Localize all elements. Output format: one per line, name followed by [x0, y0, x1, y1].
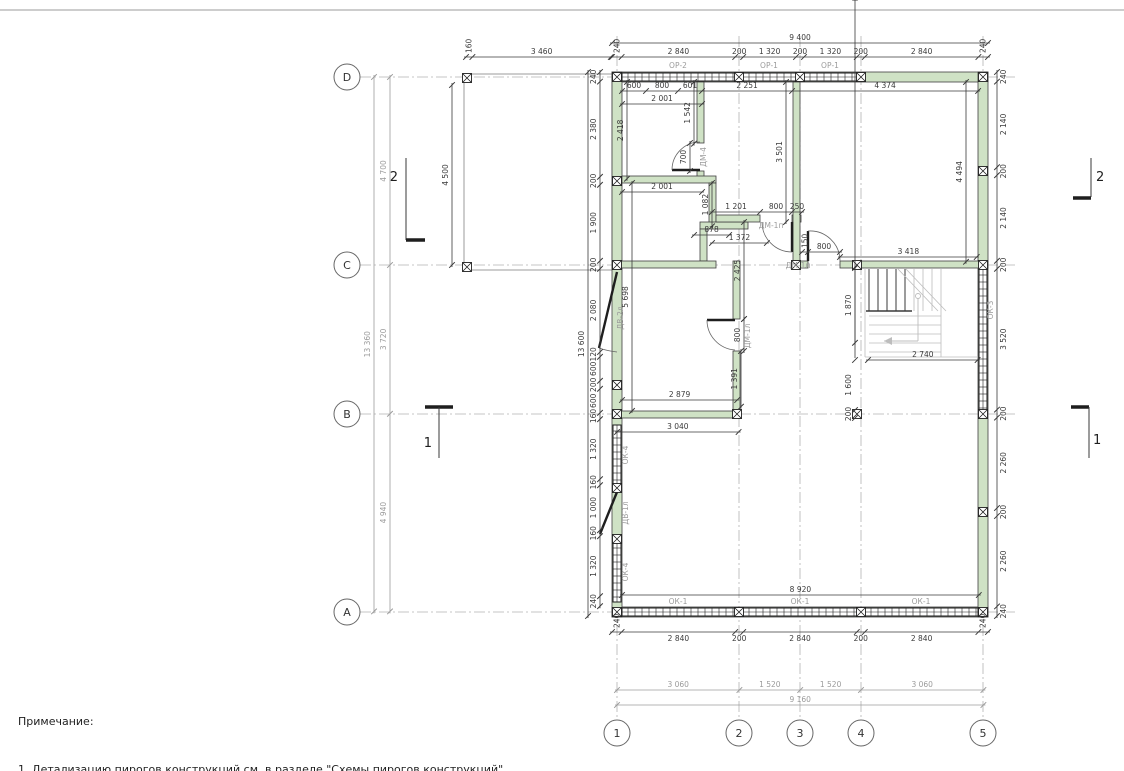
window	[743, 608, 857, 616]
axis-bubble: 3	[787, 720, 813, 746]
pier-box	[613, 261, 622, 270]
dim-chain: 4 494	[955, 79, 969, 264]
pier-box	[613, 73, 622, 82]
pier-box	[979, 410, 988, 419]
svg-text:800: 800	[733, 328, 742, 343]
pier-box	[979, 261, 988, 270]
pier-box	[735, 608, 744, 617]
dim-chain: 5 698	[621, 180, 635, 414]
dim-chain: 4 7003 7204 940	[379, 74, 393, 614]
svg-text:ДМ-1л: ДМ-1л	[743, 323, 752, 348]
svg-text:A: A	[343, 606, 351, 619]
svg-text:200: 200	[732, 634, 747, 643]
axis-bubble: A	[334, 599, 360, 625]
svg-text:200: 200	[999, 164, 1008, 179]
floor-plan: 9 4002402 8402001 3202001 3202002 840240…	[0, 0, 1124, 771]
svg-text:200: 200	[854, 634, 869, 643]
svg-text:2 840: 2 840	[668, 47, 690, 56]
notes-block: Примечание: 1. Детализацию пирогов конст…	[18, 682, 503, 771]
svg-text:2 260: 2 260	[999, 550, 1008, 572]
svg-text:C: C	[343, 259, 351, 272]
wall	[709, 183, 716, 226]
pier-box	[979, 167, 988, 176]
svg-text:ОР-1: ОР-1	[760, 61, 778, 70]
svg-text:13 600: 13 600	[577, 331, 586, 357]
dim-chain: 700	[679, 140, 693, 174]
svg-text:2 140: 2 140	[999, 207, 1008, 229]
svg-text:3 460: 3 460	[531, 47, 553, 56]
dim-chain: 150800	[799, 233, 843, 254]
svg-text:4 720: 4 720	[0, 0, 11, 2]
svg-text:2 380: 2 380	[589, 118, 598, 140]
svg-text:ОК-4: ОК-4	[621, 445, 630, 464]
axis-bubble: 4	[848, 720, 874, 746]
svg-text:120: 120	[589, 347, 598, 362]
note-line-1: 1. Детализацию пирогов конструкций см. в…	[18, 762, 503, 771]
svg-text:200: 200	[589, 377, 598, 392]
svg-text:2 001: 2 001	[651, 94, 673, 103]
svg-text:1 391: 1 391	[730, 368, 739, 390]
pier-box	[857, 608, 866, 617]
svg-text:ДВ-2л: ДВ-2л	[616, 306, 625, 329]
svg-text:3 720: 3 720	[379, 328, 388, 350]
svg-text:2 251: 2 251	[736, 81, 758, 90]
svg-text:1 520: 1 520	[759, 680, 781, 689]
axis-bubble: 2	[726, 720, 752, 746]
svg-text:600: 600	[589, 361, 598, 376]
svg-text:9 400: 9 400	[789, 33, 811, 42]
svg-text:9 160: 9 160	[789, 695, 811, 704]
axis-bubble: 1	[604, 720, 630, 746]
dim-chain: 2402 1402002 1402003 5202002 2602002 260…	[994, 69, 1008, 619]
svg-text:1 320: 1 320	[589, 438, 598, 460]
dimensions-layer: 9 4002402 8402001 3202001 3202002 840240…	[0, 0, 1008, 708]
svg-text:ДМ-1п: ДМ-1п	[786, 261, 811, 270]
svg-text:1: 1	[424, 436, 432, 451]
window	[804, 73, 857, 81]
svg-text:5: 5	[980, 727, 987, 740]
svg-text:3 520: 3 520	[999, 328, 1008, 350]
svg-text:1 201: 1 201	[725, 202, 747, 211]
svg-text:240: 240	[612, 38, 621, 53]
svg-text:1 372: 1 372	[729, 233, 751, 242]
svg-text:1 542: 1 542	[683, 102, 692, 124]
svg-text:1 900: 1 900	[589, 212, 598, 234]
svg-text:1: 1	[1093, 433, 1101, 448]
svg-text:8 920: 8 920	[790, 585, 812, 594]
pier-boxes-layer	[463, 73, 988, 617]
svg-text:2: 2	[736, 727, 743, 740]
svg-text:200: 200	[854, 47, 869, 56]
svg-text:ОК-1: ОК-1	[912, 597, 931, 606]
doors-layer	[599, 142, 840, 534]
svg-text:160: 160	[589, 409, 598, 424]
pier-box	[613, 177, 622, 186]
svg-text:2 879: 2 879	[669, 390, 691, 399]
svg-text:240: 240	[979, 38, 988, 53]
svg-text:4 494: 4 494	[955, 161, 964, 183]
svg-text:3 060: 3 060	[667, 680, 689, 689]
svg-text:ОР-1: ОР-1	[821, 61, 839, 70]
axis-bubble: D	[334, 64, 360, 90]
pier-box	[857, 73, 866, 82]
svg-text:600: 600	[589, 393, 598, 408]
svg-text:800: 800	[817, 242, 832, 251]
svg-text:4 500: 4 500	[441, 164, 450, 186]
svg-text:ДМ-4: ДМ-4	[699, 147, 708, 167]
pier-box	[613, 484, 622, 493]
svg-text:240: 240	[589, 69, 598, 84]
svg-text:1: 1	[614, 727, 621, 740]
pier-box	[979, 508, 988, 517]
svg-text:1 082: 1 082	[701, 194, 710, 216]
svg-text:1 320: 1 320	[820, 47, 842, 56]
svg-text:3 501: 3 501	[775, 141, 784, 163]
svg-text:240: 240	[612, 613, 621, 628]
dim-chain: 1 201800250	[709, 202, 805, 215]
window	[622, 73, 735, 81]
svg-text:1 870: 1 870	[844, 294, 853, 316]
axis-bubble: 5	[970, 720, 996, 746]
svg-text:5 698: 5 698	[621, 286, 630, 308]
wall	[612, 261, 716, 268]
svg-text:2 840: 2 840	[668, 634, 690, 643]
svg-text:150: 150	[801, 233, 810, 248]
svg-text:200: 200	[844, 407, 853, 422]
window	[622, 608, 735, 616]
svg-text:160: 160	[589, 475, 598, 490]
svg-text:160: 160	[465, 38, 474, 53]
pier-box	[796, 73, 805, 82]
svg-text:200: 200	[732, 47, 747, 56]
svg-text:4 700: 4 700	[379, 160, 388, 182]
svg-text:ОР-2: ОР-2	[669, 61, 687, 70]
svg-text:3 418: 3 418	[898, 247, 920, 256]
svg-text:2 080: 2 080	[589, 299, 598, 321]
dim-chain: 1603 460	[463, 38, 613, 59]
svg-text:3: 3	[797, 727, 804, 740]
dim-chain: 4 500	[441, 82, 455, 268]
axis-markers-layer: DCBA12345	[334, 64, 996, 746]
svg-text:2: 2	[390, 170, 398, 185]
svg-text:200: 200	[793, 47, 808, 56]
pier-box	[463, 74, 472, 83]
svg-text:1 320: 1 320	[759, 47, 781, 56]
svg-text:200: 200	[589, 257, 598, 272]
svg-text:240: 240	[979, 613, 988, 628]
svg-text:1 320: 1 320	[589, 555, 598, 577]
svg-text:700: 700	[679, 150, 688, 165]
dim-chain: 1 870	[844, 265, 858, 345]
wall	[716, 215, 760, 222]
svg-text:ОК-1: ОК-1	[669, 597, 688, 606]
dim-chain: 3 418	[837, 247, 979, 260]
svg-text:D: D	[343, 71, 351, 84]
svg-text:2 140: 2 140	[999, 113, 1008, 135]
svg-text:1 520: 1 520	[820, 680, 842, 689]
svg-text:B: B	[343, 408, 351, 421]
svg-text:2: 2	[1096, 170, 1104, 185]
svg-text:13 360: 13 360	[363, 331, 372, 357]
svg-text:ДВ-1л: ДВ-1л	[621, 501, 630, 524]
svg-text:250: 250	[790, 202, 805, 211]
window	[613, 542, 621, 602]
dim-chain: 2 879	[619, 390, 740, 403]
wall	[793, 82, 800, 261]
window	[865, 608, 978, 616]
svg-text:800: 800	[655, 81, 670, 90]
svg-text:200: 200	[999, 257, 1008, 272]
pier-box	[613, 410, 622, 419]
svg-text:2 840: 2 840	[911, 47, 933, 56]
svg-text:200: 200	[999, 505, 1008, 520]
svg-text:2 840: 2 840	[911, 634, 933, 643]
svg-text:1 000: 1 000	[589, 497, 598, 519]
pier-box	[733, 410, 742, 419]
dim-chain: 8 920	[619, 585, 981, 598]
svg-text:2 260: 2 260	[999, 452, 1008, 474]
terrace-outline	[464, 74, 612, 270]
svg-text:ОК-3: ОК-3	[986, 300, 995, 319]
svg-text:ОК-4: ОК-4	[621, 562, 630, 581]
axis-bubble: C	[334, 252, 360, 278]
pier-box	[613, 381, 622, 390]
svg-text:ДМ-1п: ДМ-1п	[759, 221, 784, 230]
svg-text:2 418: 2 418	[616, 119, 625, 141]
drawing-sheet: 9 4002402 8402001 3202001 3202002 840240…	[0, 0, 1124, 771]
svg-text:4: 4	[858, 727, 865, 740]
svg-text:4 940: 4 940	[379, 502, 388, 524]
svg-text:200: 200	[999, 406, 1008, 421]
svg-text:2 001: 2 001	[651, 182, 673, 191]
svg-text:240: 240	[999, 69, 1008, 84]
door-swing-arc	[707, 320, 735, 350]
dim-chain: 13 360	[363, 74, 377, 614]
window	[979, 269, 987, 410]
axis-bubble: B	[334, 401, 360, 427]
window	[613, 425, 621, 485]
pier-box	[979, 73, 988, 82]
svg-text:601: 601	[683, 81, 698, 90]
svg-text:2 425: 2 425	[733, 260, 742, 282]
notes-title: Примечание:	[18, 714, 503, 730]
svg-text:240: 240	[589, 594, 598, 609]
svg-text:ОК-1: ОК-1	[791, 597, 810, 606]
svg-text:4 374: 4 374	[874, 81, 896, 90]
svg-text:160: 160	[589, 526, 598, 541]
svg-text:1 600: 1 600	[844, 374, 853, 396]
svg-text:200: 200	[589, 173, 598, 188]
svg-text:800: 800	[769, 202, 784, 211]
axis-grid-layer	[360, 36, 1015, 720]
pier-box	[853, 261, 862, 270]
pier-box	[463, 263, 472, 272]
svg-text:3 040: 3 040	[667, 422, 689, 431]
svg-text:240: 240	[999, 604, 1008, 619]
dim-chain: 3 040	[614, 422, 741, 435]
svg-text:3 060: 3 060	[911, 680, 933, 689]
svg-text:2 840: 2 840	[789, 634, 811, 643]
pier-box	[613, 535, 622, 544]
svg-text:600: 600	[627, 81, 642, 90]
svg-text:2 740: 2 740	[912, 350, 934, 359]
